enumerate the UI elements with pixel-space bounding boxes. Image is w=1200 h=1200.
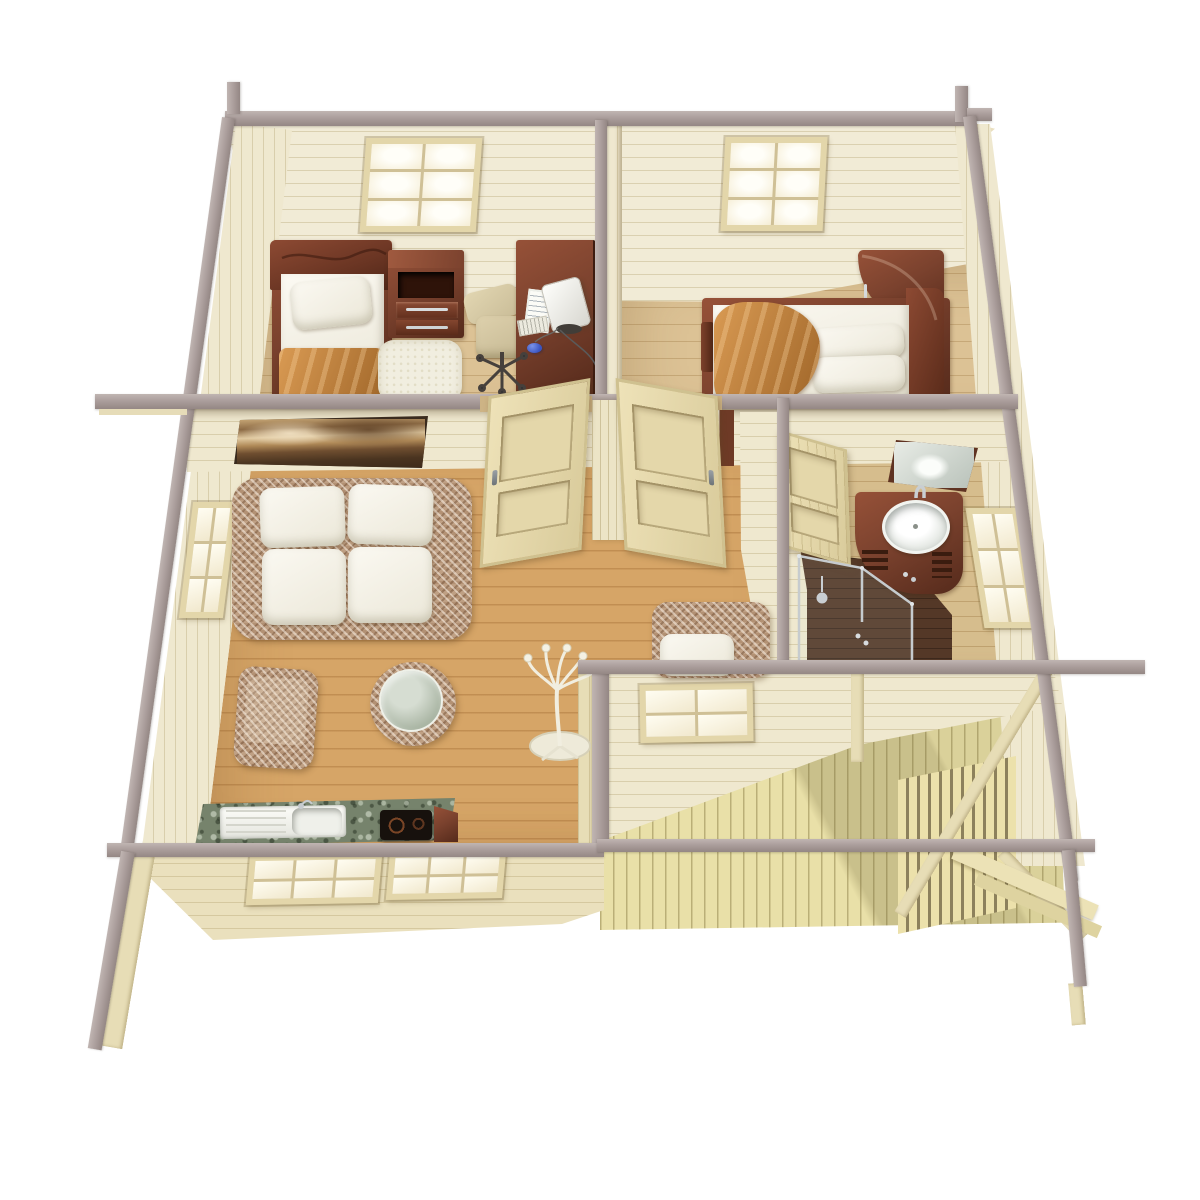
kitchen-faucet	[298, 801, 312, 809]
monitor-cable	[560, 330, 596, 366]
floorplan-render	[0, 0, 1200, 1200]
office-chair-base	[478, 352, 527, 395]
bathroom-faucet	[916, 487, 924, 498]
corner-cabinet-arc	[862, 256, 936, 320]
mouse-cable	[535, 328, 558, 342]
shower-enclosure	[797, 554, 914, 672]
detail-overlay	[0, 0, 1200, 1200]
headboard-wave-groove	[282, 250, 386, 259]
coat-stand	[524, 644, 599, 760]
